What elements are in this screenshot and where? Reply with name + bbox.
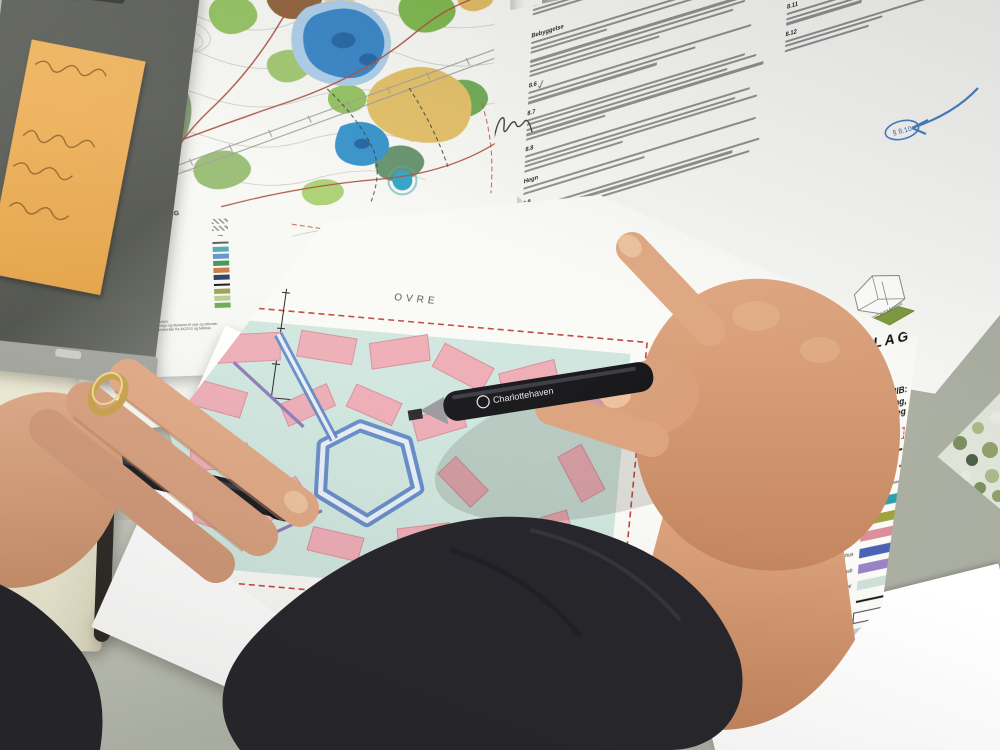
sticky-handwriting [0,39,146,295]
circled-reference: § 8.10 [892,126,913,138]
photo-scene: ✓ elligruppen. [0,0,1000,750]
right-arm: Charlottehaven [200,170,1000,750]
knuckle-highlight [732,301,780,331]
blue-annotation: § 8.10 [860,80,1000,170]
handwritten-initials [488,104,538,152]
device-key [43,0,84,1]
left-sleeve [0,580,103,750]
knuckle-highlight [800,337,840,363]
sticky-note [0,39,146,295]
device-key [87,0,128,4]
document-column-right: 8.10 8.11 8.12 [784,0,952,59]
